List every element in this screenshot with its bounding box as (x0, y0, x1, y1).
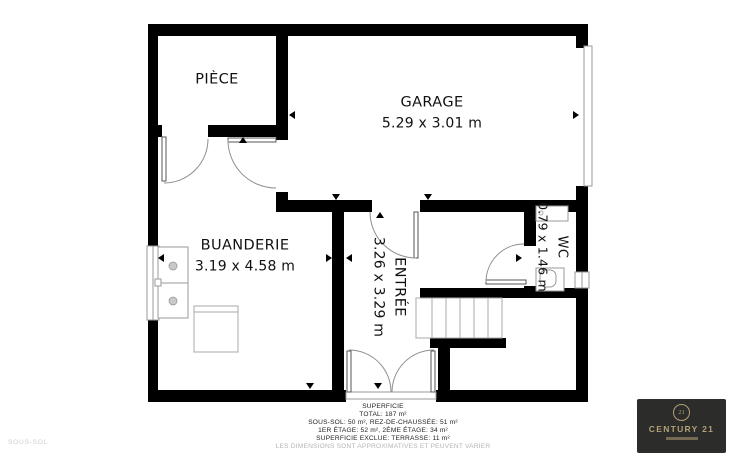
century21-logo: 21 CENTURY 21 (637, 399, 726, 453)
surface-title: SUPERFICIE (276, 403, 491, 411)
marker-right (573, 111, 579, 119)
surface-summary: SUPERFICIE TOTAL: 187 m² SOUS-SOL: 50 m²… (276, 403, 491, 452)
washer-handle (155, 279, 161, 286)
marker-up (376, 212, 384, 218)
marker-down (424, 194, 432, 200)
century21-brand-text: CENTURY 21 (649, 424, 714, 434)
marker-left (289, 111, 295, 119)
room-name-wc: WC (552, 202, 571, 292)
entrance-door-arc-left (349, 350, 391, 392)
door-leaf-wc (486, 280, 526, 284)
dimensions-disclaimer: LES DIMENSIONS SONT APPROXIMATIVES ET PE… (276, 443, 491, 451)
garage-door (584, 46, 592, 186)
door-leaf-piece (162, 137, 166, 181)
entrance-threshold (346, 392, 436, 399)
wall-piece-bottom-right (208, 125, 288, 137)
door-leaf-garage-buanderie (228, 138, 276, 142)
room-dims-garage: 5.29 x 3.01 m (382, 113, 482, 133)
room-label-buanderie: BUANDERIE 3.19 x 4.58 m (195, 235, 295, 276)
wall-right-mid (576, 186, 588, 272)
agency-name-text (666, 437, 698, 440)
room-dims-wc: 0.79 x 1.46 m (534, 202, 552, 292)
washer-knob (169, 262, 177, 270)
wall-left-lower (148, 320, 158, 402)
door-arc-wc (486, 244, 524, 282)
door-leaf-garage-entree (414, 212, 418, 258)
marker-right (516, 254, 522, 262)
room-name-garage: GARAGE (382, 92, 482, 113)
surface-line-2: 1ER ÉTAGE: 52 m², 2ÈME ÉTAGE: 34 m² (276, 427, 491, 435)
century21-seal-icon: 21 (673, 404, 690, 421)
wall-piece-right-upper (276, 24, 288, 140)
door-arc-garage-buanderie (228, 140, 276, 188)
room-name-entree: ENTRÉE (389, 237, 410, 337)
marker-down (306, 383, 314, 389)
surface-total: TOTAL: 187 m² (276, 411, 491, 419)
stair-treads-outline (416, 298, 502, 338)
room-name-buanderie: BUANDERIE (195, 235, 295, 256)
entrance-door-leaf-right (431, 351, 435, 392)
room-label-wc: WC 0.79 x 1.46 m (534, 202, 571, 292)
room-dims-buanderie: 3.19 x 4.58 m (195, 256, 295, 276)
floorplan-drawing (0, 0, 736, 460)
wall-right-lower (576, 288, 588, 402)
marker-left (346, 254, 352, 262)
wall-right-top-stub (576, 24, 588, 48)
room-dims-entree: 3.26 x 3.29 m (368, 237, 388, 337)
wall-bottom-left (148, 390, 346, 402)
room-label-entree: ENTRÉE 3.26 x 3.29 m (368, 237, 409, 337)
room-name-piece: PIÈCE (195, 69, 238, 90)
floor-level-tag: SOUS-SOL (8, 439, 48, 446)
marker-down (332, 194, 340, 200)
wall-top (148, 24, 588, 36)
wall-garage-bottom-left (276, 200, 372, 212)
laundry-table (194, 306, 238, 352)
wall-piece-bottom-left (148, 125, 162, 137)
marker-right (326, 254, 332, 262)
room-label-garage: GARAGE 5.29 x 3.01 m (382, 92, 482, 133)
wall-bottom-right (436, 390, 588, 402)
staircase (416, 298, 502, 338)
door-arc-piece (164, 139, 208, 183)
surface-line-3: SUPERFICIE EXCLUE: TERRASSE: 11 m² (276, 435, 491, 443)
wall-entry-stub (438, 346, 450, 394)
entrance-door-leaf-left (347, 351, 351, 392)
wall-divider-buanderie-entree (332, 200, 344, 402)
marker-down (374, 383, 382, 389)
entrance-door-arc-right (392, 350, 434, 392)
floorplan-canvas: PIÈCE GARAGE 5.29 x 3.01 m BUANDERIE 3.1… (0, 0, 736, 460)
dryer-knob (169, 297, 177, 305)
room-label-piece: PIÈCE (195, 69, 238, 90)
